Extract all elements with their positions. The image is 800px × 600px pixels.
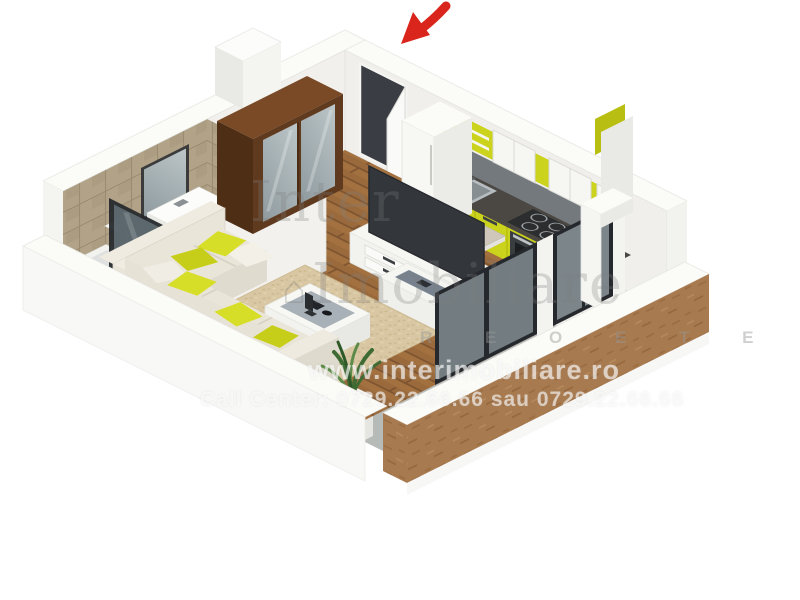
floor-plan-svg <box>0 0 800 600</box>
glass-pillar <box>537 234 553 337</box>
floor-plan-image: Inter ⌂Imobiliare R E O E T E www.interi… <box>0 0 800 600</box>
parapet-end-cap <box>383 413 407 483</box>
entrance-arrow-icon <box>401 6 446 44</box>
